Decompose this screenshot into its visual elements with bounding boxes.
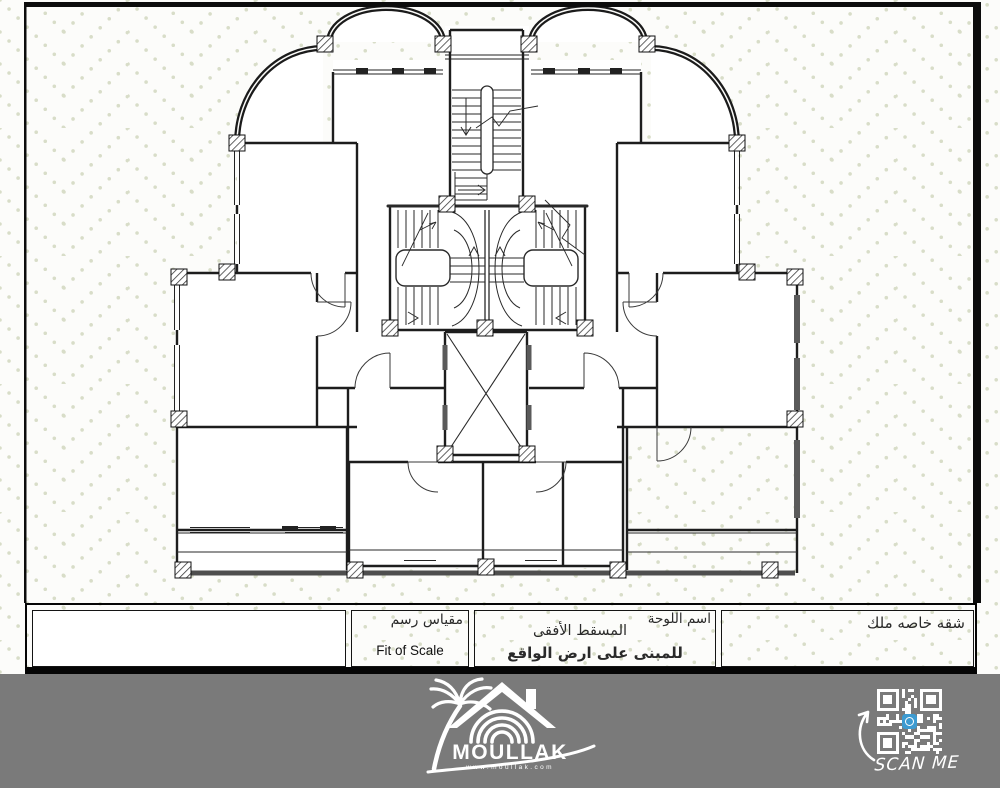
project-title: شقه خاصه ملك bbox=[867, 614, 965, 632]
title-block-scale-cell: مقياس رسم Fit of Scale bbox=[351, 610, 469, 667]
scale-value: Fit of Scale bbox=[352, 643, 468, 658]
qr-finder-top-left bbox=[877, 689, 899, 711]
qr-finder-top-right bbox=[920, 689, 942, 711]
qr-finder-bottom-left bbox=[877, 732, 899, 754]
qr-code bbox=[877, 689, 943, 755]
floor-plan bbox=[0, 0, 1000, 676]
moullak-logo: MOULLAK www.moullak.com bbox=[398, 676, 598, 776]
title-block-notes-cell bbox=[32, 610, 346, 667]
title-block-sheet-cell: اسم اللوحة المسقط الأفقى للمبنى على ارض … bbox=[474, 610, 716, 667]
scale-label: مقياس رسم bbox=[391, 612, 463, 628]
title-block-project-cell: شقه خاصه ملك bbox=[721, 610, 974, 667]
sheet-subtitle: للمبنى على ارض الواقع bbox=[475, 644, 715, 662]
curved-arrow-icon bbox=[846, 704, 876, 762]
title-block: مقياس رسم Fit of Scale اسم اللوحة المسقط… bbox=[25, 603, 977, 674]
drawing-sheet: مقياس رسم Fit of Scale اسم اللوحة المسقط… bbox=[0, 0, 1000, 788]
website-url: www.moullak.com bbox=[465, 764, 554, 771]
qr-center-icon bbox=[902, 714, 918, 730]
sheet-title: المسقط الأفقى bbox=[475, 623, 685, 639]
wifi-arcs-icon bbox=[471, 711, 533, 742]
footer-bar: MOULLAK www.moullak.com SCAN ME bbox=[0, 674, 1000, 788]
brand-name: MOULLAK bbox=[452, 741, 567, 764]
scan-me-label: SCAN ME bbox=[861, 752, 972, 776]
